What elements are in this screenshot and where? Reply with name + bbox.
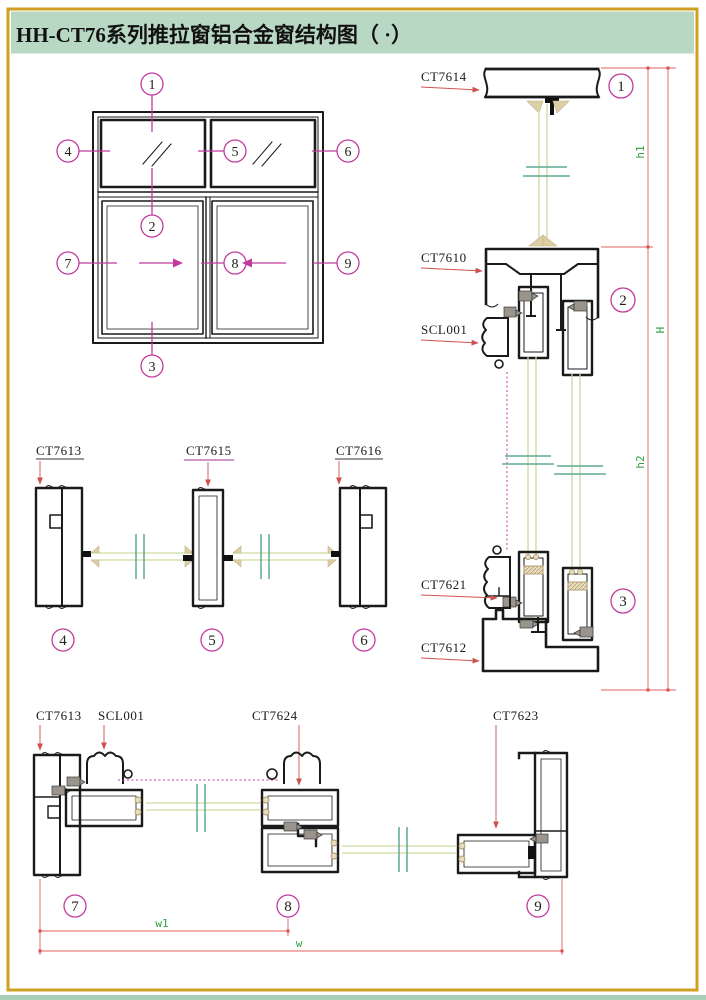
section-callout-6-number: 6 [360, 633, 368, 649]
callout-1-number: 1 [149, 78, 156, 93]
callout-7-number: 7 [65, 257, 72, 272]
dim-w1: w1 [155, 917, 168, 930]
section-callout-7-number: 7 [71, 899, 79, 915]
sheet-border [8, 9, 697, 990]
callout-4-number: 4 [65, 145, 72, 160]
section-callout-9-number: 9 [534, 899, 542, 915]
drawing-sheet: HH-CT76系列推拉窗铝合金窗结构图（ ·） [0, 0, 706, 1000]
section-callout-2-number: 2 [619, 293, 627, 309]
label-right-jamb: CT7616 [336, 443, 382, 458]
section-callout-5-number: 5 [208, 633, 216, 649]
section-callout-4-number: 4 [59, 633, 67, 649]
sheet-title: HH-CT76系列推拉窗铝合金窗结构图（ ·） [16, 23, 412, 47]
bottom-strip [0, 995, 706, 1000]
sheet-frame: HH-CT76系列推拉窗铝合金窗结构图（ ·） [0, 9, 706, 1000]
label-mullion: CT7615 [186, 443, 232, 458]
label-head: CT7614 [421, 69, 467, 84]
label-latch: CT7623 [493, 708, 539, 723]
callout-8-number: 8 [232, 257, 239, 272]
dim-h2: h2 [634, 455, 647, 468]
callout-5-number: 5 [232, 145, 239, 160]
label-sill: CT7612 [421, 640, 467, 655]
section-callout-8-number: 8 [284, 899, 292, 915]
callout-3-number: 3 [149, 360, 156, 375]
dim-H: H [654, 327, 667, 334]
latch-keeper [528, 846, 536, 859]
dim-w: w [296, 937, 303, 950]
label-sash-bottom: CT7621 [421, 577, 467, 592]
section-callout-1-number: 1 [617, 79, 625, 95]
callout-9-number: 9 [345, 257, 352, 272]
callout-6-number: 6 [345, 145, 352, 160]
label-lock: SCL001 [421, 322, 467, 337]
dim-h1: h1 [634, 145, 647, 158]
section-callout-3-number: 3 [619, 594, 627, 610]
label-transom: CT7610 [421, 250, 467, 265]
label-lock-bottom: SCL001 [98, 708, 144, 723]
label-left-jamb-bottom: CT7613 [36, 708, 82, 723]
label-interlock: CT7624 [252, 708, 298, 723]
label-left-jamb: CT7613 [36, 443, 82, 458]
callout-2-number: 2 [149, 220, 156, 235]
